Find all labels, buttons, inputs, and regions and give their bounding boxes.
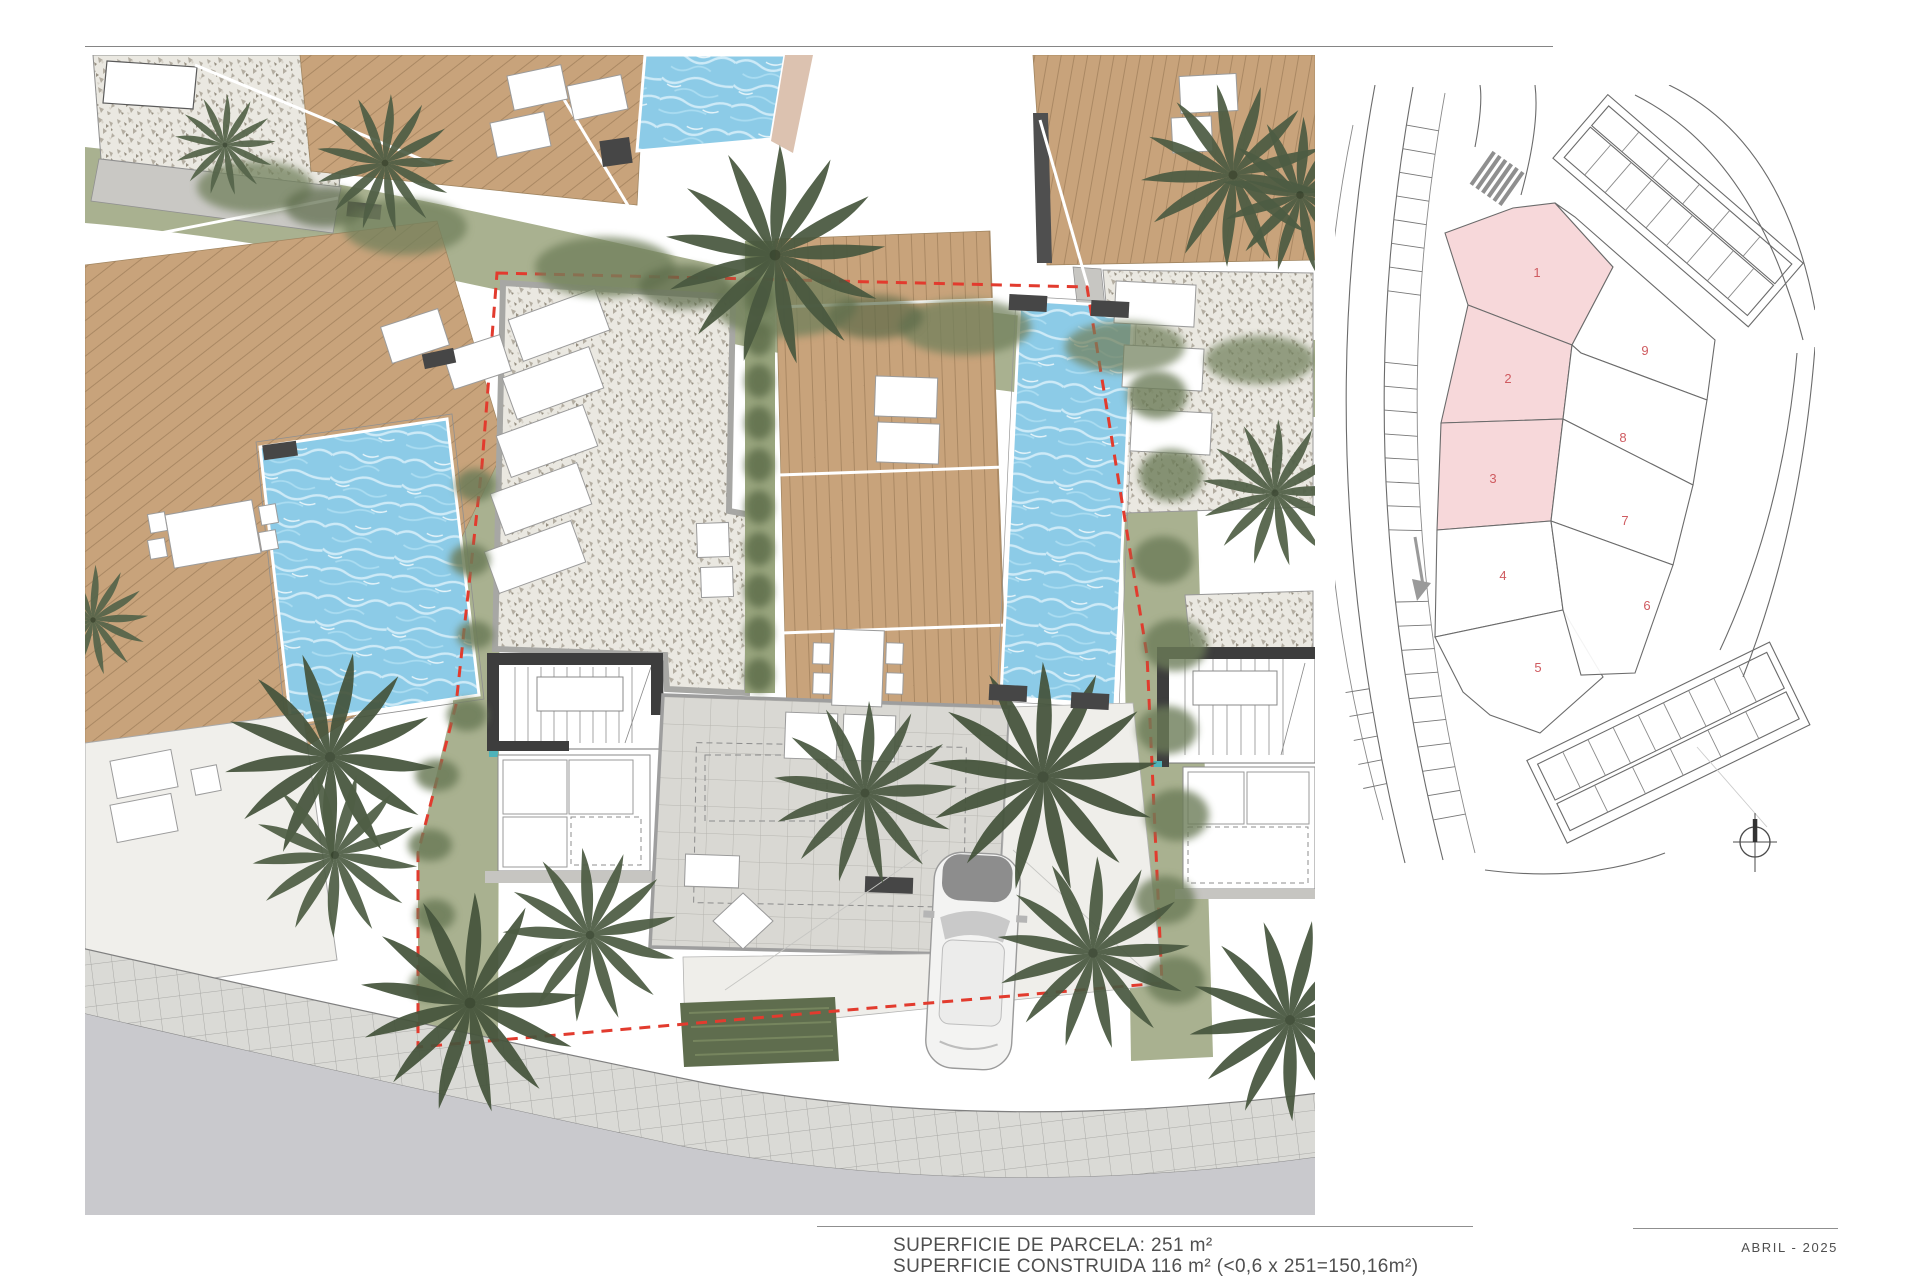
plot-number-9: 9 bbox=[1641, 343, 1648, 358]
plot-number-4: 4 bbox=[1499, 568, 1506, 583]
shrub bbox=[745, 364, 773, 398]
shrub bbox=[1137, 706, 1197, 754]
window-marker bbox=[489, 751, 498, 757]
shrub bbox=[1145, 789, 1209, 841]
plot-number-5: 5 bbox=[1534, 660, 1541, 675]
plot-number-6: 6 bbox=[1643, 598, 1650, 613]
shrub bbox=[1065, 321, 1185, 373]
shrub bbox=[745, 406, 773, 440]
sun-lounger bbox=[700, 566, 733, 597]
shrub bbox=[457, 621, 493, 649]
shrub bbox=[455, 469, 495, 501]
surface-built-label: SUPERFICIE CONSTRUIDA 116 m² (<0,6 x 251… bbox=[893, 1256, 1453, 1277]
shrub bbox=[408, 829, 452, 861]
shrub bbox=[1127, 371, 1187, 419]
chair bbox=[147, 538, 167, 560]
title-rule-line bbox=[817, 1226, 1473, 1227]
chair bbox=[886, 673, 904, 695]
top-rule-line bbox=[85, 46, 1553, 47]
shrub bbox=[827, 295, 923, 339]
shrub bbox=[745, 658, 773, 692]
plot-number-2: 2 bbox=[1504, 371, 1511, 386]
chair bbox=[813, 673, 831, 695]
chair bbox=[258, 530, 278, 552]
chair bbox=[258, 504, 278, 526]
shrub bbox=[745, 448, 773, 482]
shrub bbox=[745, 490, 773, 524]
neighbor-building-corner bbox=[103, 61, 197, 109]
shrub bbox=[745, 616, 773, 650]
street-hedge bbox=[680, 997, 839, 1067]
shrub bbox=[1133, 536, 1193, 584]
date-rule-line bbox=[1633, 1228, 1838, 1229]
traffic-arrow bbox=[1412, 537, 1431, 601]
chair bbox=[886, 643, 904, 665]
sun-lounger bbox=[696, 522, 729, 557]
date-label: ABRIL - 2025 bbox=[1633, 1240, 1838, 1255]
compass-icon bbox=[1733, 813, 1777, 872]
neighbor-pool-west bbox=[260, 419, 479, 723]
sun-lounger bbox=[874, 376, 937, 418]
shrub bbox=[1139, 449, 1203, 501]
plot-number-8: 8 bbox=[1619, 430, 1626, 445]
chair bbox=[147, 512, 167, 534]
shrub bbox=[745, 532, 773, 566]
keyplan-plot-3 bbox=[1437, 419, 1563, 530]
shrub bbox=[447, 699, 487, 731]
site-plan-drawing bbox=[85, 55, 1315, 1215]
shrub bbox=[745, 574, 773, 608]
shrub bbox=[450, 544, 490, 576]
chair bbox=[813, 643, 831, 665]
dining-table bbox=[832, 629, 885, 707]
dining-table bbox=[191, 765, 221, 795]
key-plan: 1 2 3 4 5 6 7 8 9 bbox=[1335, 85, 1815, 875]
surface-text-block: SUPERFICIE DE PARCELA: 251 m² SUPERFICIE… bbox=[893, 1235, 1453, 1277]
surface-parcel-label: SUPERFICIE DE PARCELA: 251 m² bbox=[893, 1235, 1453, 1256]
bench bbox=[865, 876, 914, 894]
subject-villa-staircase bbox=[485, 653, 663, 883]
shrub bbox=[415, 759, 459, 791]
shrub bbox=[1143, 619, 1207, 671]
sun-lounger bbox=[876, 422, 939, 464]
drawing-sheet: 1 2 3 4 5 6 7 8 9 SUPERFICIE DE PARCELA:… bbox=[0, 0, 1920, 1280]
sun-lounger bbox=[1179, 74, 1238, 114]
plot-number-1: 1 bbox=[1533, 265, 1540, 280]
neighbor-pool-top bbox=[637, 55, 785, 151]
plot-number-3: 3 bbox=[1489, 471, 1496, 486]
plot-number-7: 7 bbox=[1621, 513, 1628, 528]
crosswalk bbox=[1471, 152, 1523, 205]
shrub bbox=[1205, 336, 1315, 384]
